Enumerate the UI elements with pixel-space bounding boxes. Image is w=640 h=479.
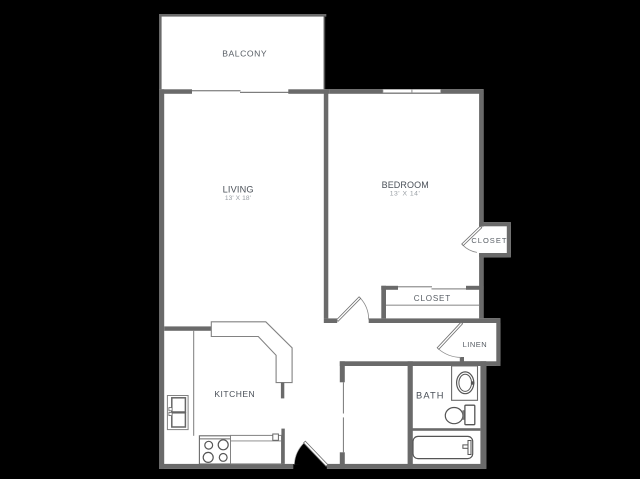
svg-text:13' X 14': 13' X 14'	[390, 190, 421, 197]
svg-text:CLOSET: CLOSET	[414, 294, 451, 303]
svg-text:BALCONY: BALCONY	[222, 48, 267, 58]
svg-text:LIVING: LIVING	[223, 185, 254, 195]
svg-text:BEDROOM: BEDROOM	[382, 180, 429, 190]
svg-text:CLOSET: CLOSET	[471, 236, 507, 245]
svg-text:KITCHEN: KITCHEN	[214, 389, 255, 399]
svg-text:LINEN: LINEN	[463, 340, 488, 349]
svg-text:13' X 18': 13' X 18'	[225, 195, 251, 202]
svg-text:BATH: BATH	[416, 390, 445, 400]
